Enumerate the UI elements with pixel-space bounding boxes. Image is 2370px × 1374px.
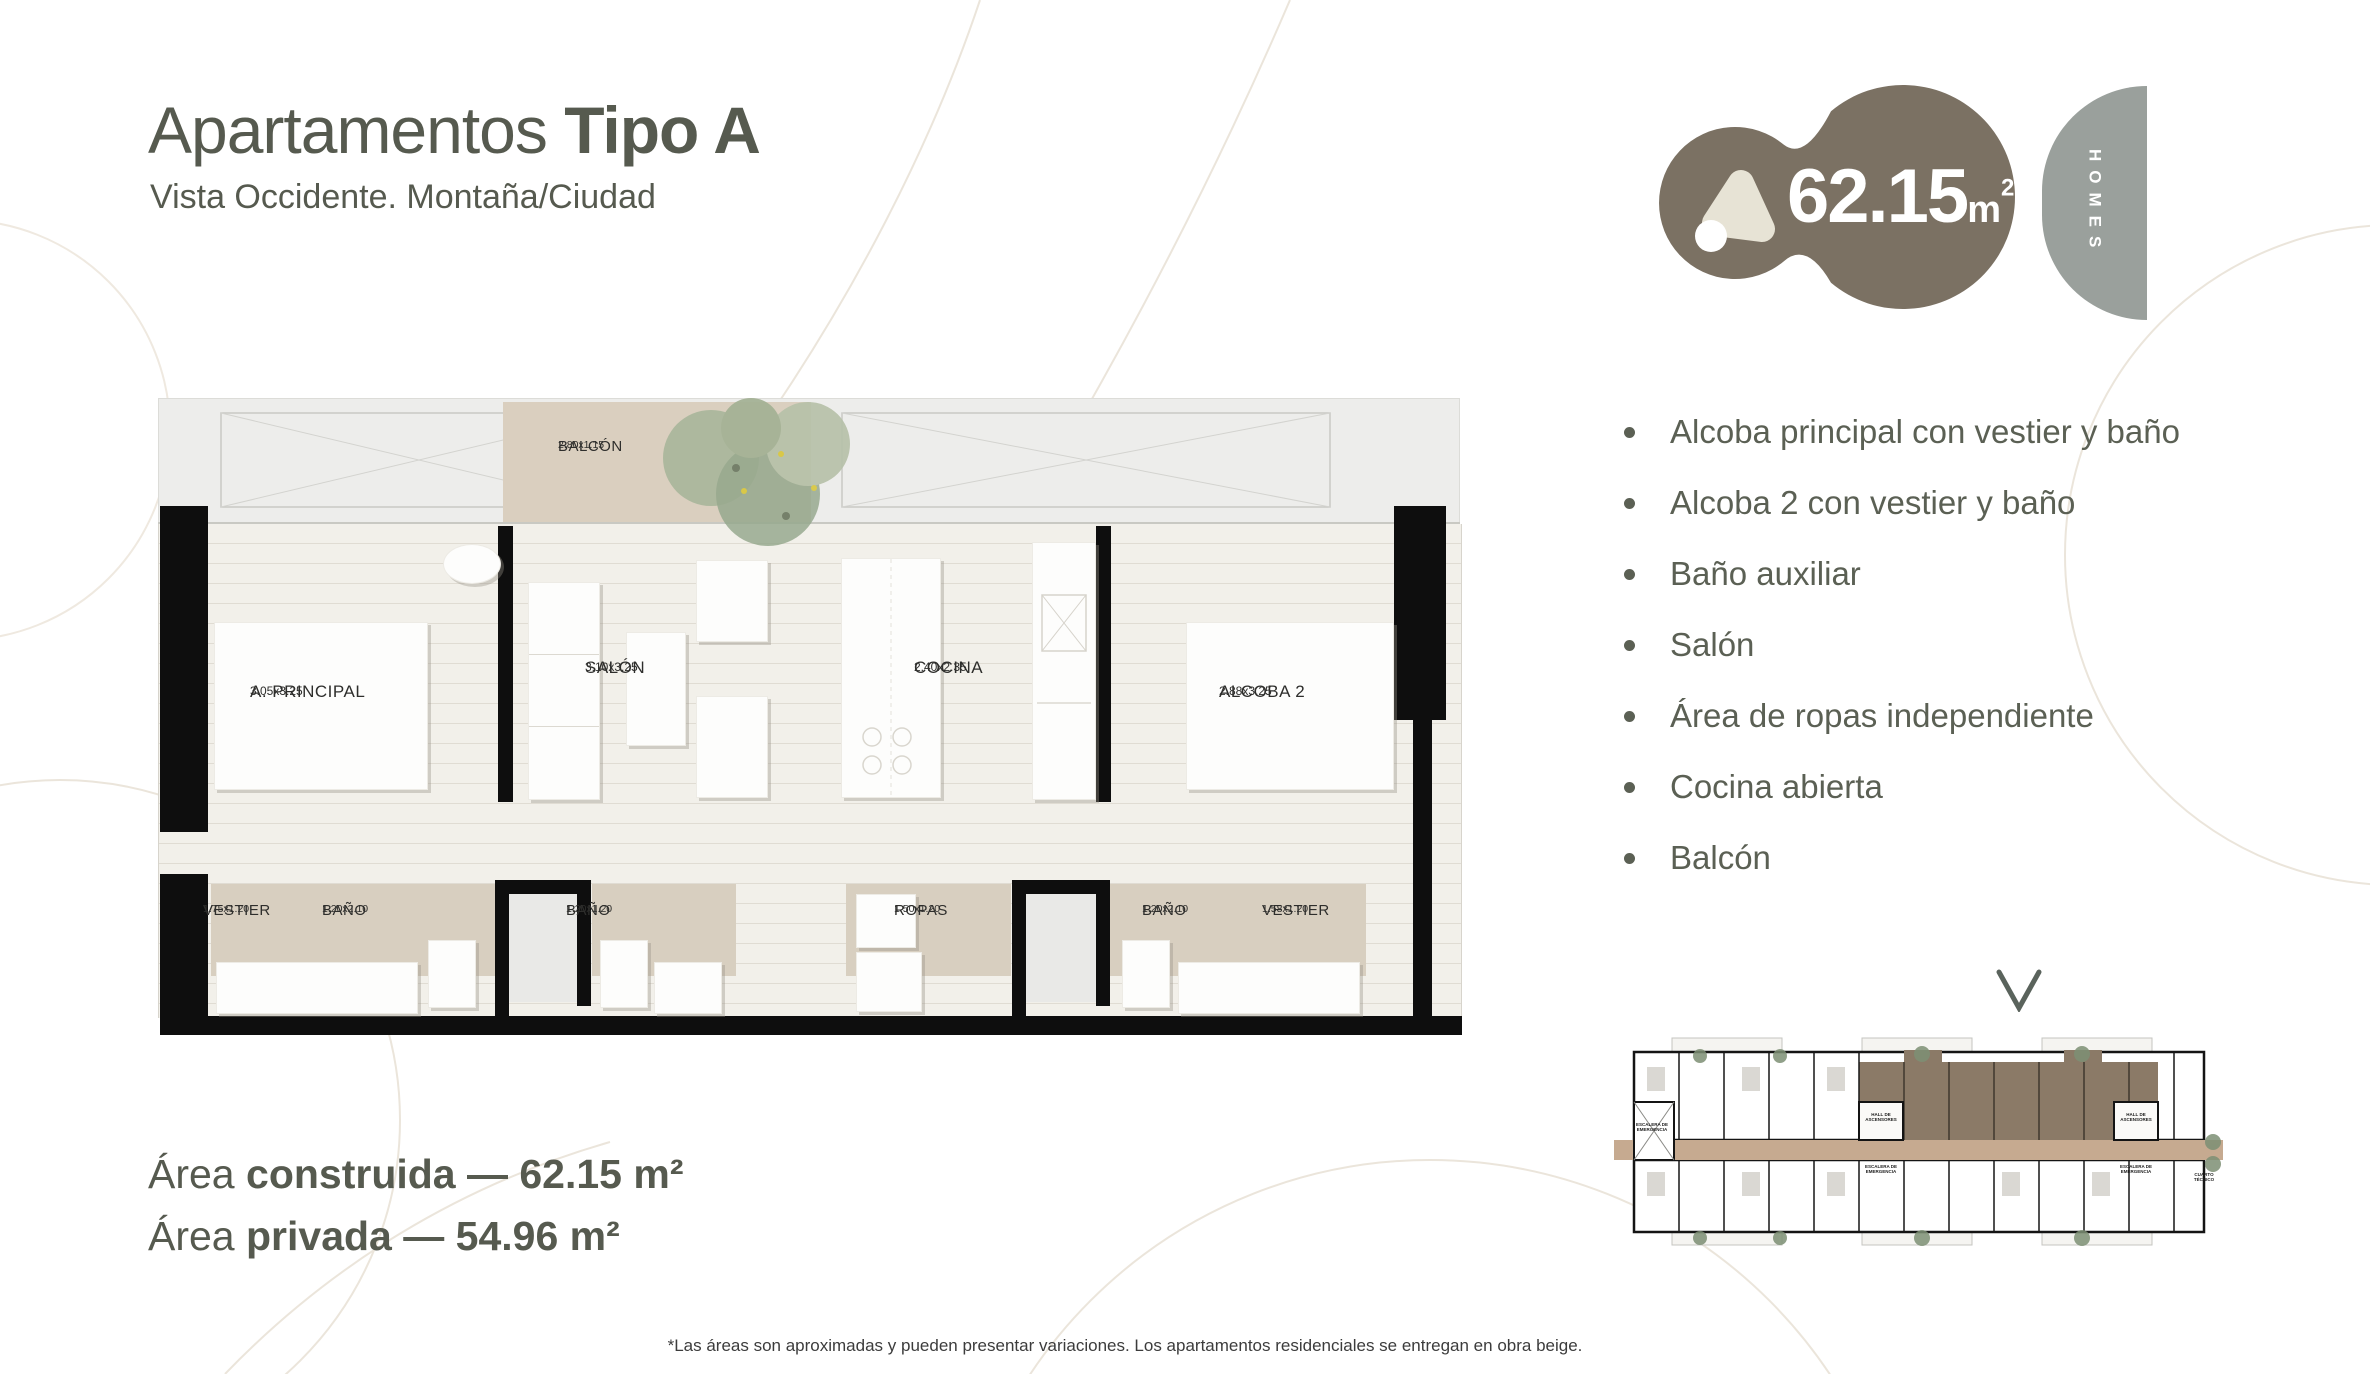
badge-area-value: 62.15: [1787, 154, 1967, 239]
sofa: [528, 582, 600, 800]
feature-item: Balcón: [1622, 822, 2180, 893]
feature-item: Cocina abierta: [1622, 751, 2180, 822]
wall-left-upper: [160, 506, 208, 832]
page-subtitle: Vista Occidente. Montaña/Ciudad: [150, 178, 656, 217]
badge-area-unit: m: [1967, 189, 2001, 231]
feature-label: Balcón: [1670, 839, 1771, 877]
area-summary: Área construida — 62.15 m² Área privada …: [148, 1143, 683, 1267]
page-title: Apartamentos Tipo A: [148, 92, 760, 168]
area-value: privada — 54.96 m²: [246, 1213, 620, 1259]
kitchen-island: [841, 558, 941, 798]
area-value: construida — 62.15 m²: [246, 1151, 683, 1197]
cabinet-xbox: [1033, 543, 1095, 799]
bullet-icon: [1624, 569, 1635, 580]
wall-right-lower: [1413, 720, 1432, 1018]
page-title-regular: Apartamentos: [148, 93, 547, 167]
feature-label: Baño auxiliar: [1670, 555, 1861, 593]
wall-right-upper: [1394, 506, 1446, 720]
feature-item: Alcoba 2 con vestier y baño: [1622, 467, 2180, 538]
vanity-counter-left: [216, 962, 418, 1014]
page-title-bold: Tipo A: [564, 93, 760, 167]
toilet-left: [428, 940, 476, 1008]
bed-alcoba2: [1186, 622, 1394, 790]
sink-middle: [654, 962, 722, 1014]
area-label: Área: [148, 1213, 235, 1259]
area-line-privada: Área privada — 54.96 m²: [148, 1205, 683, 1267]
keyplan-map: [1612, 1022, 2230, 1250]
area-line-construida: Área construida — 62.15 m²: [148, 1143, 683, 1205]
bullet-icon: [1624, 498, 1635, 509]
floor-plan: BALCÓN 2.80x1.15: [156, 396, 1462, 1036]
wall-alcoba-partition: [1096, 526, 1111, 802]
stall2-wall-left: [1012, 880, 1026, 1018]
coffee-table: [626, 632, 686, 746]
dryer: [856, 952, 922, 1012]
toilet-middle: [600, 940, 648, 1008]
bullet-icon: [1624, 853, 1635, 864]
dining-chair-bottom: [696, 696, 768, 798]
keyplan-label-escalera-right: ESCALERA DE EMERGENCIA: [2116, 1164, 2156, 1174]
stall2-shower: [1026, 894, 1096, 1002]
brochure-page: Apartamentos Tipo A Vista Occidente. Mon…: [0, 0, 2370, 1374]
feature-label: Cocina abierta: [1670, 768, 1883, 806]
area-badge: 62.15m2 HOMES: [1655, 83, 2155, 328]
building-key-plan: ESCALERA DE EMERGENCIA HALL DE ASCENSORE…: [1612, 1022, 2230, 1250]
round-side-table: [443, 544, 501, 584]
keyplan-label-escalera-left: ESCALERA DE EMERGENCIA: [1632, 1122, 1672, 1132]
bullet-icon: [1624, 427, 1635, 438]
feature-label: Salón: [1670, 626, 1754, 664]
keyplan-label-hall-right: HALL DE ASCENSORES: [2116, 1112, 2156, 1122]
feature-item: Salón: [1622, 609, 2180, 680]
keyplan-label-escalera-mid: ESCALERA DE EMERGENCIA: [1861, 1164, 1901, 1174]
wall-bottom: [160, 1016, 1462, 1035]
badge-area-text: 62.15m2: [1787, 153, 2014, 240]
vanity-counter-right: [1178, 962, 1360, 1014]
keyplan-label-hall-left: HALL DE ASCENSORES: [1861, 1112, 1901, 1122]
area-label: Área: [148, 1151, 235, 1197]
feature-list: Alcoba principal con vestier y baño Alco…: [1622, 396, 2180, 893]
slab-xbox-right: [841, 412, 1331, 508]
wall-left-lower: [160, 874, 208, 1034]
feature-label: Alcoba principal con vestier y baño: [1670, 413, 2180, 451]
keyplan-label-cuarto-tecnico: CUARTO TÉCNICO: [2184, 1172, 2224, 1182]
bed-principal: [214, 622, 428, 790]
homes-brand-label: HOMES: [2042, 86, 2147, 320]
badge-area-sup: 2: [2001, 175, 2014, 202]
feature-item: Alcoba principal con vestier y baño: [1622, 396, 2180, 467]
balcony-trees: [616, 396, 876, 576]
stall2-wall-right: [1096, 880, 1110, 1006]
feature-item: Área de ropas independiente: [1622, 680, 2180, 751]
tall-cabinet: [1032, 542, 1096, 800]
brand-logo-icon: [1715, 183, 1762, 229]
bullet-icon: [1624, 640, 1635, 651]
homes-brand-disc: HOMES: [2042, 86, 2147, 320]
stall1-wall-left: [495, 880, 509, 1018]
toilet-right: [1122, 940, 1170, 1008]
feature-label: Área de ropas independiente: [1670, 697, 2094, 735]
feature-label: Alcoba 2 con vestier y baño: [1670, 484, 2075, 522]
stall1-wall-right: [577, 880, 591, 1006]
stove-burners: [842, 559, 940, 797]
disclaimer-note: *Las áreas son aproximadas y pueden pres…: [0, 1336, 2250, 1356]
location-chevron-icon: [1995, 968, 2043, 1012]
bullet-icon: [1624, 711, 1635, 722]
bullet-icon: [1624, 782, 1635, 793]
feature-item: Baño auxiliar: [1622, 538, 2180, 609]
